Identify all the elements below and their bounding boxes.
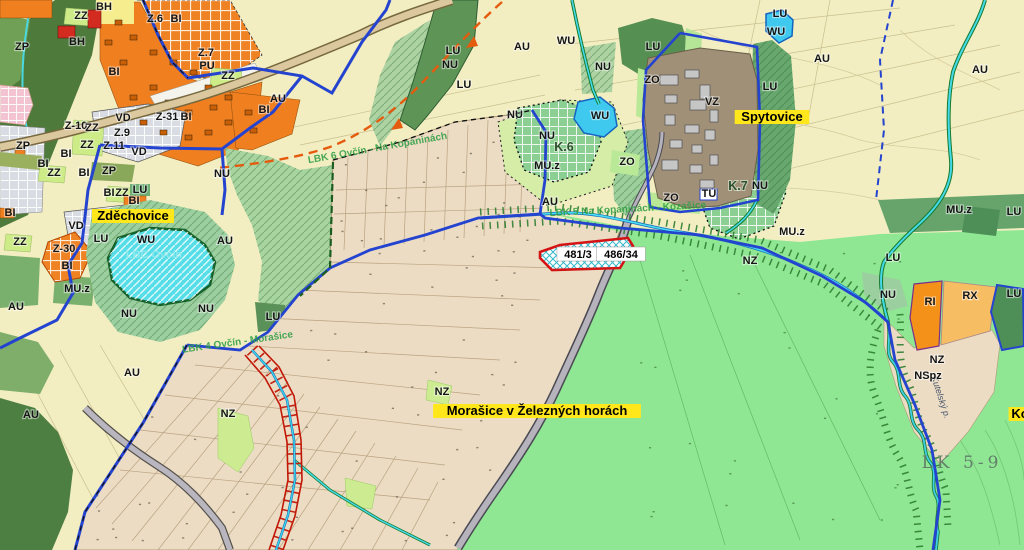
zone-labels-text: Z-30 [53, 243, 76, 255]
place-labels-text: Zděchovice [97, 208, 169, 223]
zone-labels-text: AU [23, 409, 39, 421]
zone-labels-text: AU [542, 196, 558, 208]
zone-labels-text: AU [514, 41, 530, 53]
zone-labels-text: BI [171, 13, 182, 25]
zone-labels-text: BI [5, 207, 16, 219]
zone-labels-text: K.6 [554, 140, 574, 154]
zone-labels-text: NSpz [914, 370, 942, 382]
zone-labels-text: Z-10 [65, 120, 88, 132]
zone-labels-text: VD [115, 112, 130, 124]
zone-labels-text: LU [94, 233, 109, 245]
zone-labels-text: NU [442, 59, 458, 71]
zone-labels-text: NZ [435, 386, 450, 398]
zone-labels-text: Z.9 [114, 127, 130, 139]
zone-labels-text: BI [62, 260, 73, 272]
zone-labels-text: ZZ [80, 139, 94, 151]
parcel-labels-text: 486/34 [604, 249, 639, 261]
zone-labels-text: VZ [705, 96, 719, 108]
zone-labels-text: BH [69, 36, 85, 48]
zone-labels-text: ZP [102, 165, 116, 177]
zone-labels-text: LU [763, 81, 778, 93]
zone-labels-text: Z.7 [198, 47, 214, 59]
zone-labels-text: LU [457, 79, 472, 91]
parcel-labels-text: 481/3 [564, 249, 592, 261]
zone-labels-text: VD [131, 146, 146, 158]
zone-labels-text: LU [646, 41, 661, 53]
zone-labels-text: NU [198, 303, 214, 315]
zone-labels-text: TU [702, 188, 717, 200]
corridor-labels-text: LK 5-9 [922, 453, 1003, 473]
zone-labels-text: BI [259, 104, 270, 116]
zone-labels-text: AU [8, 301, 24, 313]
zone-labels-text: ZZ [47, 167, 61, 179]
zone-labels-text: ZZ [221, 70, 235, 82]
zone-labels-text: NU [595, 61, 611, 73]
zone-labels-text: NU [214, 168, 230, 180]
zone-labels-text: BI [104, 187, 115, 199]
zone-labels-text: NU [507, 109, 523, 121]
zone-labels-text: BI [109, 66, 120, 78]
zone-labels-text: WU [591, 110, 609, 122]
zone-labels-text: ZZ [115, 187, 129, 199]
zone-labels-text: NU [539, 130, 555, 142]
zone-labels-text: WU [767, 26, 785, 38]
zone-labels-text: MU.z [779, 226, 805, 238]
zone-labels-text: LU [1007, 288, 1022, 300]
zone-labels-text: RX [962, 290, 978, 302]
zone-labels-text: ZZ [85, 122, 99, 134]
zone-labels-text: BI [129, 195, 140, 207]
place-labels-text: Ko [1011, 406, 1024, 421]
place-labels-text: Spytovice [741, 109, 802, 124]
corridor-labels-text: LBC Ovčín [126, 249, 183, 261]
zone-labels-text: ZO [619, 156, 635, 168]
zone-labels-text: RI [925, 296, 936, 308]
zone-labels-text: Z-31 [156, 111, 179, 123]
place-labels-text: Morašice v Železných horách [447, 403, 628, 418]
zone-labels-text: LU [266, 311, 281, 323]
zone-labels-text: MU.z [64, 283, 90, 295]
zone-labels-text: ZP [15, 41, 29, 53]
map-canvas: LBK 6 Ovčín - Na KopanináchLBK 5 Na Kopa… [0, 0, 1024, 550]
zone-labels-text: Z.6 [147, 13, 163, 25]
zone-labels-text: AU [972, 64, 988, 76]
zone-labels-text: NZ [743, 255, 758, 267]
zone-labels-text: WU [137, 234, 155, 246]
zone-labels-text: NZ [930, 354, 945, 366]
zone-labels-text: VD [68, 220, 83, 232]
zone-labels-text: ZP [16, 140, 30, 152]
zone-labels-text: NZ [221, 408, 236, 420]
zone-labels-text: MU.z [534, 160, 560, 172]
zone-labels-text: AU [814, 53, 830, 65]
zoning-map[interactable]: LBK 6 Ovčín - Na KopanináchLBK 5 Na Kopa… [0, 0, 1024, 550]
zone-labels-text: ZZ [74, 10, 88, 22]
zone-labels-text: AU [217, 235, 233, 247]
zone-labels-text: PU [199, 60, 214, 72]
zone-labels-text: AU [270, 93, 286, 105]
ri-zone [910, 281, 942, 350]
zone-labels-text: LU [773, 8, 788, 20]
zone-labels-text: LU [886, 252, 901, 264]
zone-labels-text: ZZ [13, 236, 27, 248]
zone-labels-text: LU [446, 45, 461, 57]
zone-labels-text: BH [96, 1, 112, 13]
zone-labels-text: BI [181, 111, 192, 123]
zone-labels-text: NU [752, 180, 768, 192]
zone-labels-text: AU [124, 367, 140, 379]
zone-labels-text: K.7 [728, 179, 748, 193]
zone-labels-text: ZO [663, 192, 679, 204]
zone-labels-text: Z.11 [103, 140, 124, 152]
zone-labels-text: MU.z [946, 204, 972, 216]
zone-labels-text: BI [61, 148, 72, 160]
zone-labels-text: LU [1007, 206, 1022, 218]
zone-labels-text: WU [557, 35, 575, 47]
zone-labels-text: NU [121, 308, 137, 320]
parcel-labels: 481/3486/34 [557, 247, 645, 261]
zone-labels-text: BI [79, 167, 90, 179]
zone-labels-text: ZO [644, 74, 660, 86]
zone-labels-text: NU [880, 289, 896, 301]
